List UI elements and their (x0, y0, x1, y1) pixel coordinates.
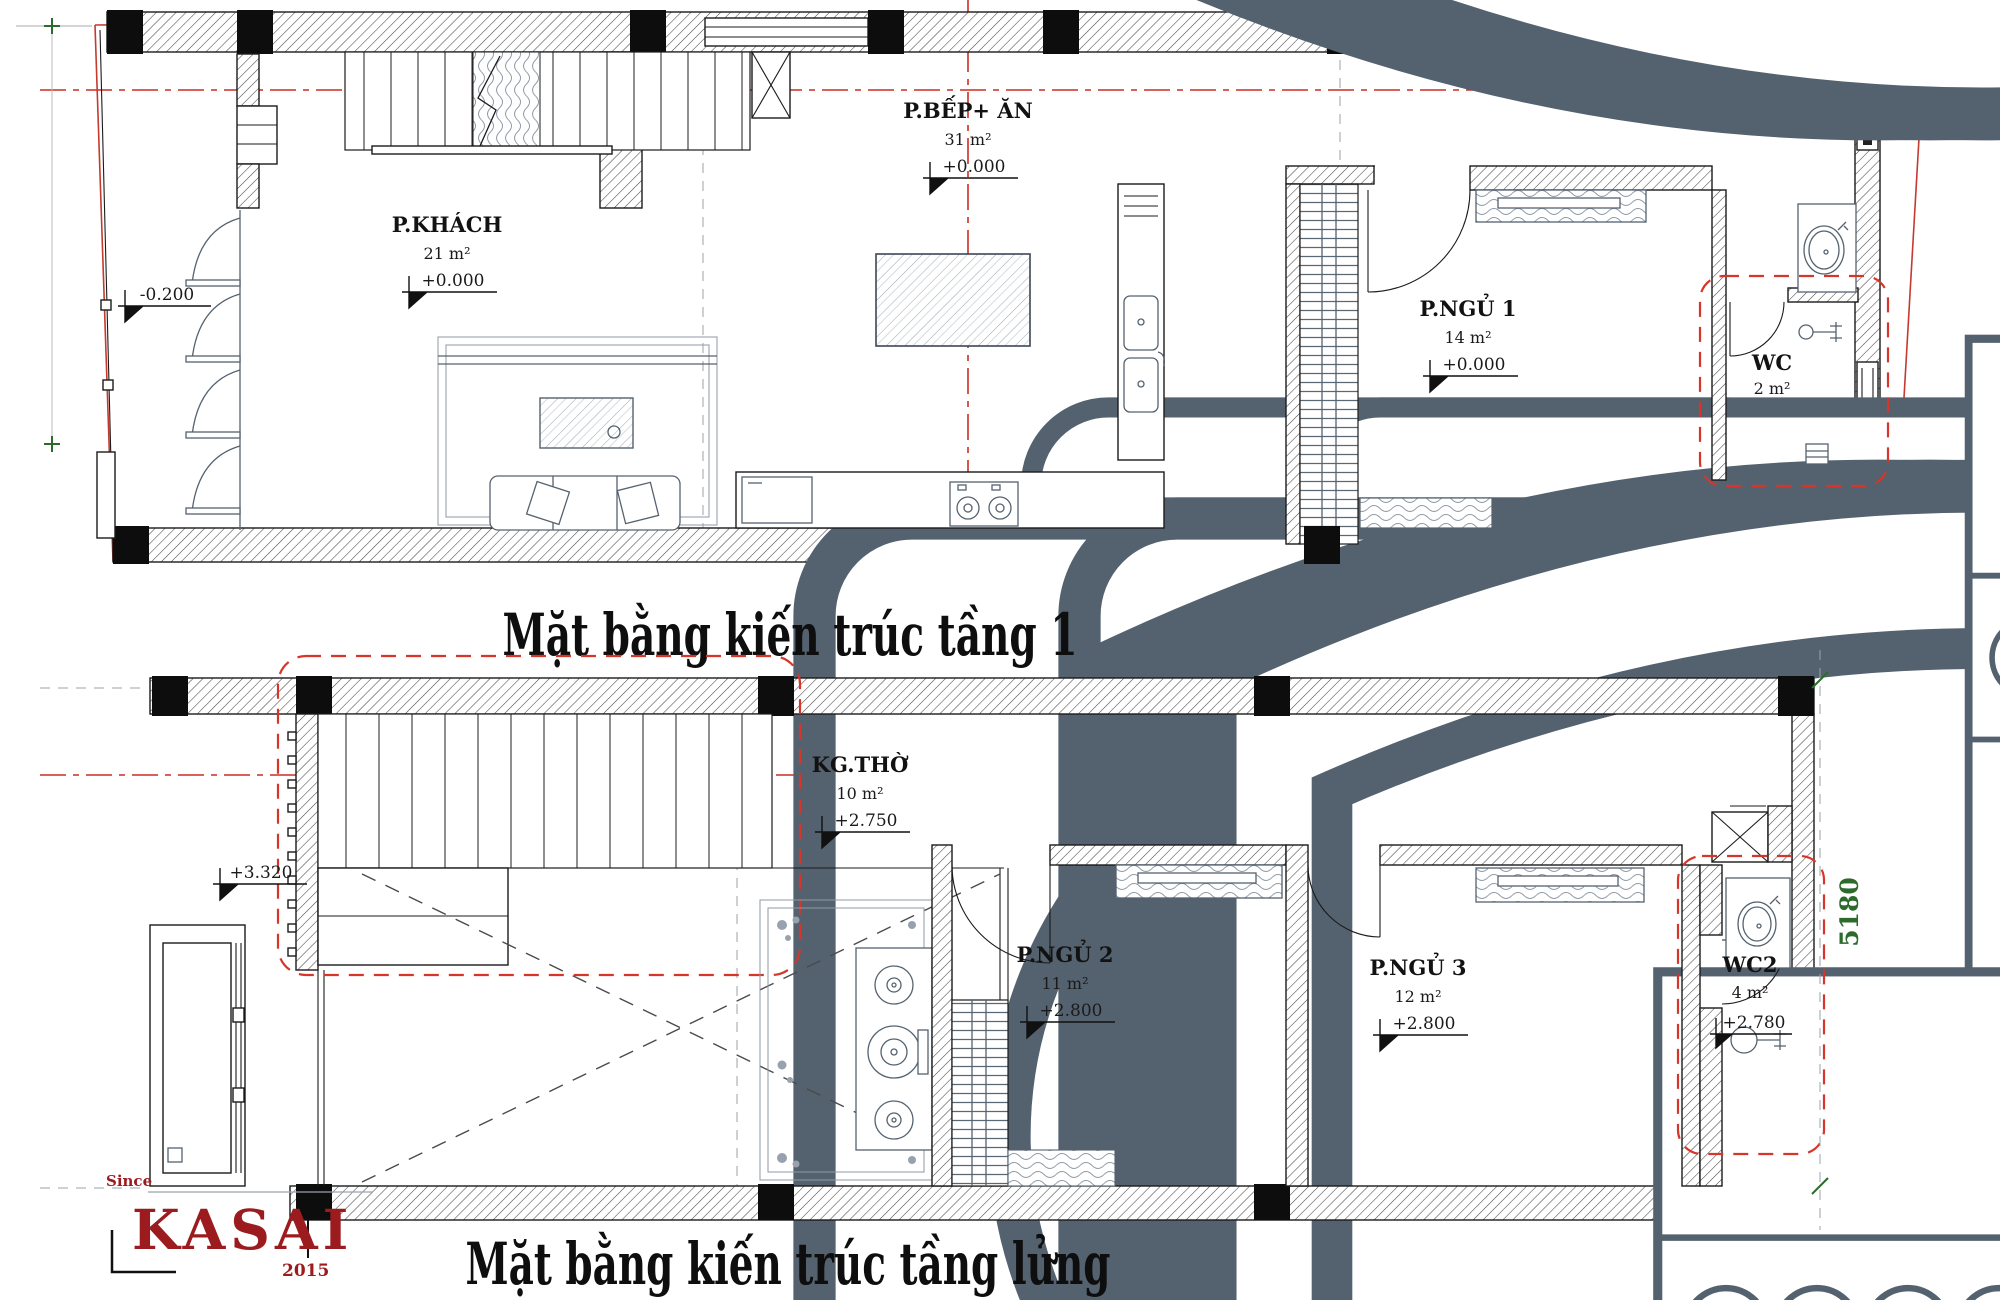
room-area: 12 m² (1394, 987, 1441, 1006)
ladder-mezzanine (952, 1000, 1008, 1186)
room-area: 2 m² (1754, 379, 1791, 398)
door-arc-wc1 (1730, 302, 1784, 356)
room-level: +2.780 (1723, 1013, 1786, 1033)
room-name: P.NGỦ 3 (1370, 952, 1467, 980)
room-level: +2.800 (1040, 1001, 1103, 1021)
stairs-floor1 (345, 52, 750, 154)
logo-since: Since (106, 1172, 152, 1190)
room-name: P.NGỦ 1 (1420, 293, 1517, 321)
room-area: 11 m² (1041, 974, 1088, 993)
elevator-shaft (1712, 806, 1792, 862)
room-area: 14 m² (1444, 328, 1491, 347)
room-level: +2.800 (1393, 1014, 1456, 1034)
room-label-living: P.KHÁCH 21 m² +0.000 (392, 212, 503, 308)
floor-drain (1806, 444, 1828, 464)
sink-bowl-2 (1124, 358, 1158, 412)
room-area: 21 m² (423, 244, 470, 263)
mezzanine-left-window (150, 925, 245, 1186)
room-name: P.BẾP+ ĂN (903, 96, 1033, 123)
kitchen-cabinet (742, 477, 812, 523)
tv (540, 398, 633, 448)
floor-mat-bed2 (1008, 1150, 1115, 1186)
room-label-kitchen: P.BẾP+ ĂN 31 m² +0.000 (903, 96, 1033, 194)
sofa (490, 476, 680, 530)
floor-plan-drawing: P.KHÁCH 21 m² +0.000 P.BẾP+ ĂN 31 m² +0.… (0, 0, 2000, 1300)
mezzanine-title: Mặt bằng kiến trúc tầng lửng (466, 1230, 1111, 1298)
dresser-bed1 (1360, 498, 1492, 528)
room-name: P.KHÁCH (392, 212, 503, 237)
sink-bowl-1 (1124, 296, 1158, 350)
entry-level-label: -0.200 (118, 285, 211, 322)
room-area: 31 m² (944, 130, 991, 149)
room-label-wc1: WC 2 m² (1751, 350, 1792, 398)
floor1-title: Mặt bằng kiến trúc tầng 1 (503, 601, 1078, 669)
room-level: +2.750 (835, 811, 898, 831)
floor-plan-sheet: P.KHÁCH 21 m² +0.000 P.BẾP+ ĂN 31 m² +0.… (0, 0, 2000, 1300)
room-name: KG.THỜ (812, 752, 909, 777)
shower-mixer-1 (1799, 322, 1842, 342)
door-arc-bed1 (1368, 190, 1470, 292)
room-level: +0.000 (422, 271, 485, 291)
folding-door (186, 210, 240, 530)
room-level: +0.000 (1443, 355, 1506, 375)
dining-table (876, 254, 1030, 346)
room-label-bed1: P.NGỦ 1 14 m² +0.000 (1420, 293, 1519, 392)
wall-teeth (288, 732, 296, 956)
room-area: 10 m² (836, 784, 883, 803)
logo-year: 2015 (282, 1261, 329, 1281)
entry-level: -0.200 (140, 285, 194, 305)
stove (950, 482, 1018, 526)
vanity-counter (1798, 204, 1856, 292)
room-name: WC (1751, 350, 1792, 375)
dimension-value: 5180 (1835, 877, 1864, 947)
survey-cross-top (44, 18, 60, 34)
kitchen (736, 184, 1164, 528)
logo-name: KASAI (132, 1197, 353, 1262)
void-level: +3.320 (230, 863, 293, 883)
room-area: 4 m² (1732, 983, 1769, 1002)
room-name: P.NGỦ 2 (1017, 939, 1114, 967)
room-level: +0.000 (943, 157, 1006, 177)
room-name: WC2 (1722, 952, 1778, 977)
survey-cross-bottom (44, 436, 60, 452)
